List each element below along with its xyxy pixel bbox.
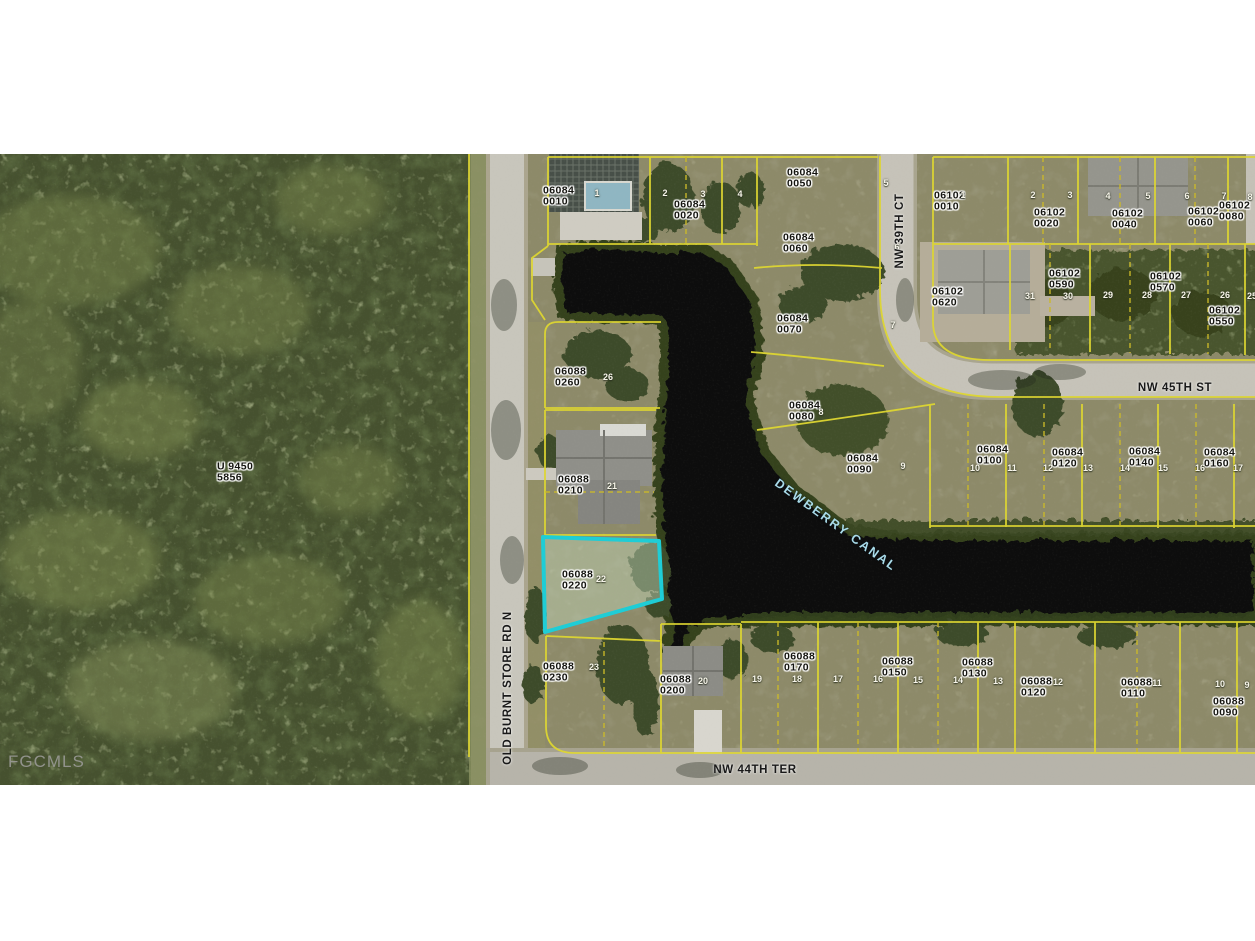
- imagery-grain: [0, 154, 1255, 785]
- aerial-parcel-map: [0, 154, 1255, 785]
- mls-map-attachment: 06084 001006084 002006084 005006084 0060…: [0, 0, 1255, 941]
- aerial-imagery: [0, 154, 1255, 785]
- fgcmls-watermark: FGCMLS: [8, 752, 85, 772]
